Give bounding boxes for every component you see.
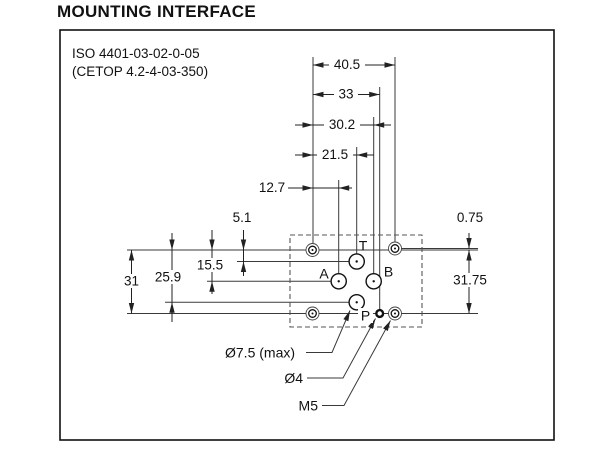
bolt-hole-bottom-left <box>306 307 319 320</box>
leader-lines <box>306 311 391 406</box>
pin-hole <box>376 310 383 317</box>
callout-pin-diameter: Ø4 <box>284 370 303 386</box>
drawing-page: MOUNTING INTERFACE ISO 4401-03-02-0-05 (… <box>0 0 610 450</box>
callout-bolt-thread: M5 <box>299 398 319 414</box>
port-a-label: A <box>319 266 329 282</box>
port-t-label: T <box>359 238 368 254</box>
page-title: MOUNTING INTERFACE <box>57 2 256 21</box>
callout-labels: Ø7.5 (max) Ø4 M5 <box>225 345 318 414</box>
bolt-hole-top-left <box>306 244 319 257</box>
dim-port-t-y: 5.1 <box>233 210 252 225</box>
bolt-hole-bottom-right <box>389 307 402 320</box>
port-t-center-mark <box>356 260 358 262</box>
dim-bolt-right-offset: 0.75 <box>457 210 483 225</box>
cetop-standard-label: (CETOP 4.2-4-03-350) <box>72 64 208 79</box>
dim-pin-hole-x: 33 <box>338 87 353 102</box>
dim-bolt-right-spacing: 31.75 <box>453 273 487 288</box>
mounting-interface-drawing: MOUNTING INTERFACE ISO 4401-03-02-0-05 (… <box>0 0 610 450</box>
port-a-center-mark <box>338 280 340 282</box>
dim-port-a-x: 12.7 <box>259 180 285 195</box>
dim-ports-ab-y: 15.5 <box>197 258 223 273</box>
bolt-hole-top-right <box>389 242 402 255</box>
dim-ports-tp-x: 21.5 <box>322 147 348 162</box>
port-p-label: P <box>361 308 370 324</box>
dim-port-p-y: 25.9 <box>155 270 181 285</box>
dim-overall-width: 40.5 <box>334 57 360 72</box>
dim-port-b-x: 30.2 <box>329 117 355 132</box>
dim-bolt-left-spacing: 31 <box>124 274 139 289</box>
port-b-label: B <box>384 264 393 280</box>
callout-port-diameter: Ø7.5 (max) <box>225 345 295 361</box>
port-b-center-mark <box>373 280 375 282</box>
port-p-center-mark <box>356 301 358 303</box>
dimension-labels: 40.5 33 30.2 21.5 12.7 5.1 15.5 25.9 31 … <box>124 57 487 289</box>
iso-standard-label: ISO 4401-03-02-0-05 <box>72 46 200 61</box>
